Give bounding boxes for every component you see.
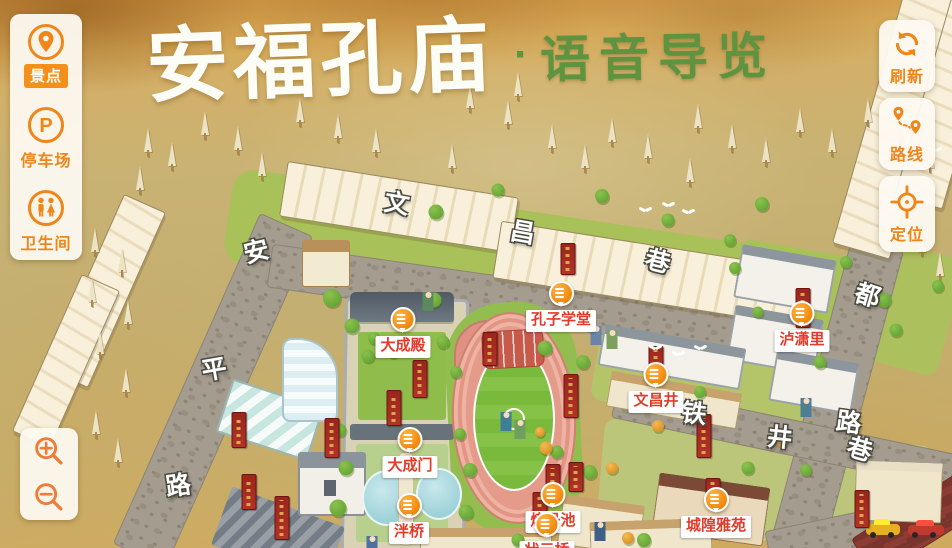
red-banner-sign — [242, 474, 257, 510]
map-poplar-tree — [88, 278, 96, 302]
map-poplar-tree — [234, 126, 242, 150]
map-poplar-tree — [144, 128, 152, 152]
refresh-label: 刷新 — [890, 63, 924, 87]
poi-label[interactable]: 大成门 — [382, 456, 437, 478]
map-tree — [637, 533, 651, 547]
map-poplar-tree — [608, 118, 616, 142]
street-name-char: 路 — [163, 464, 193, 503]
map-poi-5[interactable]: 大成门 — [382, 427, 437, 478]
map-building — [282, 338, 338, 422]
zoom-controls — [20, 428, 78, 520]
category-sidebar: 景点 P 停车场 — [10, 14, 82, 260]
zoom-in-button[interactable] — [29, 431, 69, 471]
map-tree — [840, 256, 852, 268]
map-building — [12, 274, 120, 448]
poi-label[interactable]: 文昌井 — [628, 391, 683, 413]
map-tree — [890, 324, 903, 337]
map-poplar-tree — [136, 166, 144, 190]
poi-label[interactable]: 泸潇里 — [774, 330, 829, 352]
route-icon — [888, 103, 926, 141]
map-tree — [450, 366, 462, 378]
map-poplar-tree — [694, 104, 702, 128]
map-poplar-tree — [118, 248, 126, 272]
map-poplar-tree — [686, 158, 694, 182]
map-person-figure — [367, 536, 378, 548]
dove — [662, 202, 674, 208]
map-poplar-tree — [728, 124, 736, 148]
red-banner-sign — [564, 374, 579, 418]
map-poi-8[interactable]: 城隍雅苑 — [681, 487, 751, 538]
dove — [672, 351, 684, 357]
map-subtitle: 语音导览 — [539, 16, 776, 92]
locate-button[interactable]: 定位 — [879, 176, 935, 252]
sidebar-item-scenic-spots[interactable]: 景点 — [24, 22, 68, 88]
sidebar-item-restroom[interactable]: 卫生间 — [20, 188, 71, 254]
dove — [639, 207, 651, 213]
svg-text:P: P — [39, 115, 52, 137]
locate-icon — [888, 183, 926, 221]
map-tree — [463, 463, 477, 477]
poi-label[interactable]: 孔子学堂 — [526, 310, 596, 332]
sidebar-label: 停车场 — [20, 147, 71, 171]
parking-icon: P — [26, 105, 66, 145]
dove — [682, 209, 694, 215]
audio-guide-marker-icon[interactable] — [548, 281, 573, 306]
refresh-button[interactable]: 刷新 — [879, 20, 935, 92]
map-poi-1[interactable]: 大成殿 — [375, 307, 430, 358]
map-poplar-tree — [548, 124, 556, 148]
red-banner-sign — [275, 496, 290, 540]
red-banner-sign — [387, 390, 402, 426]
zoom-out-icon — [30, 478, 68, 516]
red-car — [908, 525, 944, 535]
map-autumn-tree — [535, 427, 545, 437]
map-poplar-tree — [114, 438, 122, 462]
map-poplar-tree — [581, 144, 589, 168]
map-person-figure — [501, 412, 512, 431]
map-poplar-tree — [644, 134, 652, 158]
map-tree — [800, 464, 812, 476]
locate-label: 定位 — [890, 221, 924, 245]
map-tree — [437, 336, 450, 349]
red-banner-sign — [413, 360, 428, 398]
map-poplar-tree — [258, 152, 266, 176]
map-autumn-tree — [652, 420, 664, 432]
audio-guide-marker-icon[interactable] — [534, 512, 559, 537]
map-tree — [454, 428, 466, 440]
sidebar-label: 卫生间 — [20, 230, 71, 254]
voice-guide-map-app: 安平路文昌巷铁井都路巷 大成殿孔子学堂泸潇里文昌井大成门泮桥炼丹池城隍雅苑状元桥… — [0, 0, 952, 548]
map-tree — [362, 350, 375, 363]
street-name-char: 井 — [766, 417, 795, 455]
scenic-spot-icon — [26, 22, 66, 62]
map-tree — [595, 189, 609, 203]
map-title: 安福孔庙 — [144, 0, 496, 119]
dove — [694, 345, 706, 351]
map-person-figure — [515, 420, 526, 439]
map-poi-3[interactable]: 泸潇里 — [774, 301, 829, 352]
map-autumn-tree — [606, 462, 618, 474]
map-poplar-tree — [762, 138, 770, 162]
map-poi-9[interactable]: 状元桥 — [519, 512, 574, 548]
map-person-figure — [607, 330, 618, 349]
zoom-out-button[interactable] — [29, 477, 69, 517]
street-name-char: 铁 — [680, 393, 709, 431]
red-banner-sign — [483, 332, 498, 366]
map-poplar-tree — [92, 410, 100, 434]
map-tree — [724, 234, 736, 246]
sidebar-item-parking[interactable]: P 停车场 — [20, 105, 71, 171]
taxi-car — [866, 524, 900, 535]
restroom-icon — [26, 188, 66, 228]
map-poplar-tree — [124, 300, 132, 324]
map-tree — [814, 356, 827, 369]
zoom-in-icon — [30, 432, 68, 470]
sidebar-label: 景点 — [24, 64, 68, 88]
map-poplar-tree — [91, 228, 99, 252]
map-autumn-tree — [540, 442, 553, 455]
map-poplar-tree — [796, 108, 804, 132]
map-poplar-tree — [504, 100, 512, 124]
route-label: 路线 — [890, 141, 924, 165]
title-separator: · — [514, 30, 529, 80]
map-poplar-tree — [334, 114, 342, 138]
map-autumn-tree — [622, 532, 634, 544]
map-tree — [753, 307, 764, 318]
audio-guide-marker-icon[interactable] — [397, 427, 422, 452]
red-banner-sign — [855, 490, 870, 528]
map-poplar-tree — [864, 98, 872, 122]
red-banner-sign — [325, 418, 340, 458]
map-poplar-tree — [122, 368, 130, 392]
audio-guide-marker-icon[interactable] — [396, 493, 421, 518]
map-tree — [729, 262, 741, 274]
map-poplar-tree — [372, 128, 380, 152]
poi-label[interactable]: 状元桥 — [519, 541, 574, 548]
audio-guide-marker-icon[interactable] — [703, 487, 728, 512]
map-tree — [755, 197, 769, 211]
route-button[interactable]: 路线 — [879, 98, 935, 170]
map-tree — [538, 341, 553, 356]
red-banner-sign — [232, 412, 247, 448]
map-tree — [323, 289, 341, 307]
poi-label[interactable]: 泮桥 — [389, 522, 429, 544]
map-poplar-tree — [448, 144, 456, 168]
map-poplar-tree — [168, 142, 176, 166]
audio-guide-marker-icon[interactable] — [390, 307, 415, 332]
map-tree — [662, 214, 675, 227]
audio-guide-marker-icon[interactable] — [643, 362, 668, 387]
map-tree — [492, 184, 505, 197]
map-poi-2[interactable]: 孔子学堂 — [526, 281, 596, 332]
poi-label[interactable]: 大成殿 — [375, 336, 430, 358]
map-poplar-tree — [828, 128, 836, 152]
map-poi-6[interactable]: 泮桥 — [389, 493, 429, 544]
audio-guide-marker-icon[interactable] — [540, 482, 565, 507]
audio-guide-marker-icon[interactable] — [789, 301, 814, 326]
refresh-icon — [888, 25, 926, 63]
map-poplar-tree — [96, 330, 104, 354]
red-banner-sign — [561, 243, 576, 275]
map-tree — [345, 319, 360, 334]
map-tree — [330, 500, 347, 517]
map-poplar-tree — [936, 252, 944, 276]
dove — [649, 345, 661, 351]
map-tree — [583, 465, 597, 479]
map-person-figure — [595, 522, 606, 541]
map-tree — [932, 280, 944, 292]
map-person-figure — [801, 398, 812, 417]
map-tree — [339, 461, 354, 476]
map-tree — [742, 462, 755, 475]
map-tree — [459, 505, 474, 520]
map-tree — [429, 205, 444, 220]
map-poi-4[interactable]: 文昌井 — [628, 362, 683, 413]
map-building — [302, 240, 350, 287]
map-tree — [576, 355, 590, 369]
poi-label[interactable]: 城隍雅苑 — [681, 516, 751, 538]
